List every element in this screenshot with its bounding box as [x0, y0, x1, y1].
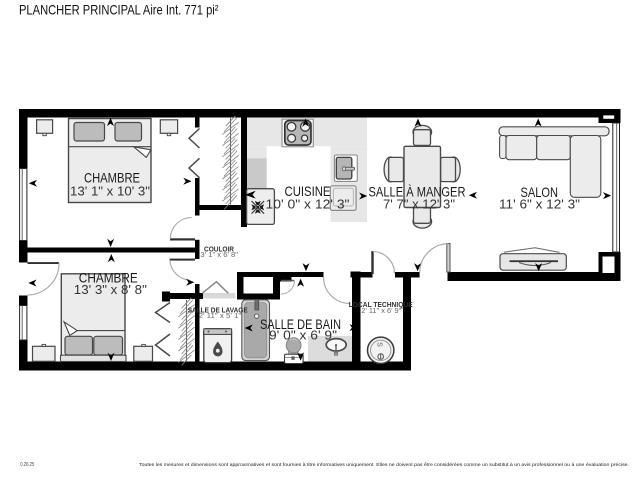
svg-text:PLANCHER PRINCIPAL Aire Int. 7: PLANCHER PRINCIPAL Aire Int. 771 pi² [19, 2, 219, 18]
svg-text:S: S [376, 342, 383, 347]
svg-text:3' 1" x 6' 8": 3' 1" x 6' 8" [200, 252, 238, 259]
svg-text:7' 7" x 12' 3": 7' 7" x 12' 3" [383, 197, 455, 212]
svg-text:13' 3" x 8' 8": 13' 3" x 8' 8" [74, 282, 147, 297]
svg-text:13' 1" x 10' 3": 13' 1" x 10' 3" [70, 184, 150, 199]
svg-text:2' 11" x 6' 9": 2' 11" x 6' 9" [361, 308, 402, 315]
svg-text:Toutes les mesures et dimensio: Toutes les mesures et dimensions sont ap… [139, 462, 629, 468]
svg-text:10' 0" x 12' 3": 10' 0" x 12' 3" [266, 197, 350, 212]
svg-text:0.26.25: 0.26.25 [20, 462, 34, 468]
svg-text:2' 11" x 5' 1": 2' 11" x 5' 1" [199, 313, 242, 320]
svg-text:9' 0" x 6' 9": 9' 0" x 6' 9" [269, 328, 337, 343]
svg-text:11' 6" x 12' 3": 11' 6" x 12' 3" [499, 197, 580, 212]
